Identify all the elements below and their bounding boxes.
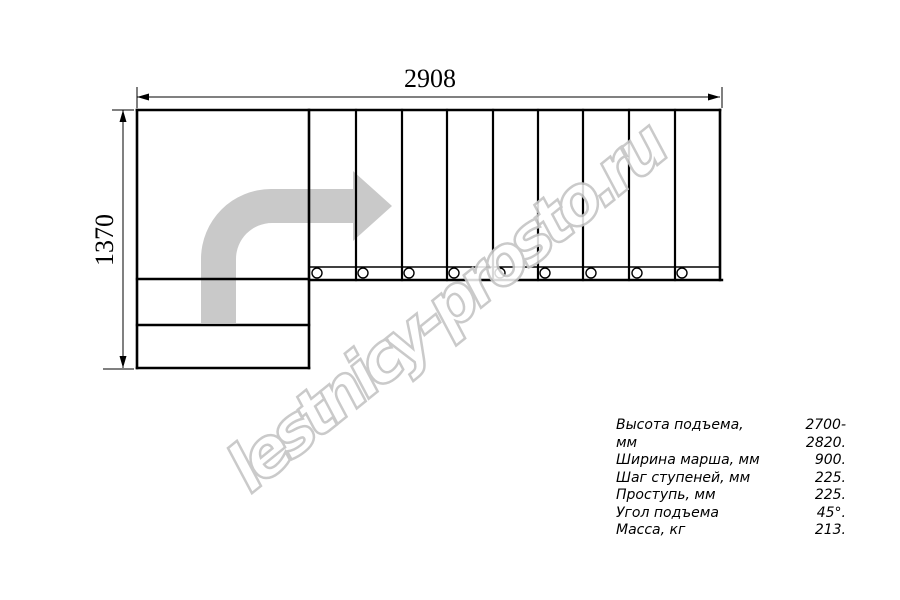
stair-plan-drawing: 2908 1370 lestnicy-prosto.ru Высота подъ…: [0, 0, 900, 600]
spec-label: Проступь, мм: [616, 487, 716, 505]
flight-step-lines: [356, 110, 675, 280]
spec-value: 213.: [807, 522, 846, 540]
travel-direction-arrow-icon: [201, 171, 392, 323]
spec-row-mass: Масса, кг 213.: [616, 522, 846, 540]
spec-label: Масса, кг: [616, 522, 685, 540]
spec-label: Ширина марша, мм: [616, 452, 760, 470]
spec-value: 225.: [807, 470, 846, 488]
spec-label: Шаг ступеней, мм: [616, 470, 750, 488]
spec-row-flight-width: Ширина марша, мм 900.: [616, 452, 846, 470]
fastener-circles: [312, 268, 687, 278]
spec-row-step-pitch: Шаг ступеней, мм 225.: [616, 470, 846, 488]
spec-value: 225.: [807, 487, 846, 505]
spec-value: 45°.: [809, 505, 846, 523]
width-dimension-label: 2908: [378, 66, 482, 92]
spec-label: Высота подъема, мм: [616, 417, 761, 452]
specs-list: Высота подъема, мм 2700-2820. Ширина мар…: [616, 417, 846, 540]
spec-label: Угол подъема: [616, 505, 719, 523]
spec-row-rise-height: Высота подъема, мм 2700-2820.: [616, 417, 846, 452]
spec-row-tread: Проступь, мм 225.: [616, 487, 846, 505]
stringer-strip: [309, 267, 722, 280]
height-dimension-label: 1370: [90, 210, 120, 270]
spec-row-rise-angle: Угол подъема 45°.: [616, 505, 846, 523]
spec-value: 2700-2820.: [761, 417, 846, 452]
spec-value: 900.: [807, 452, 846, 470]
